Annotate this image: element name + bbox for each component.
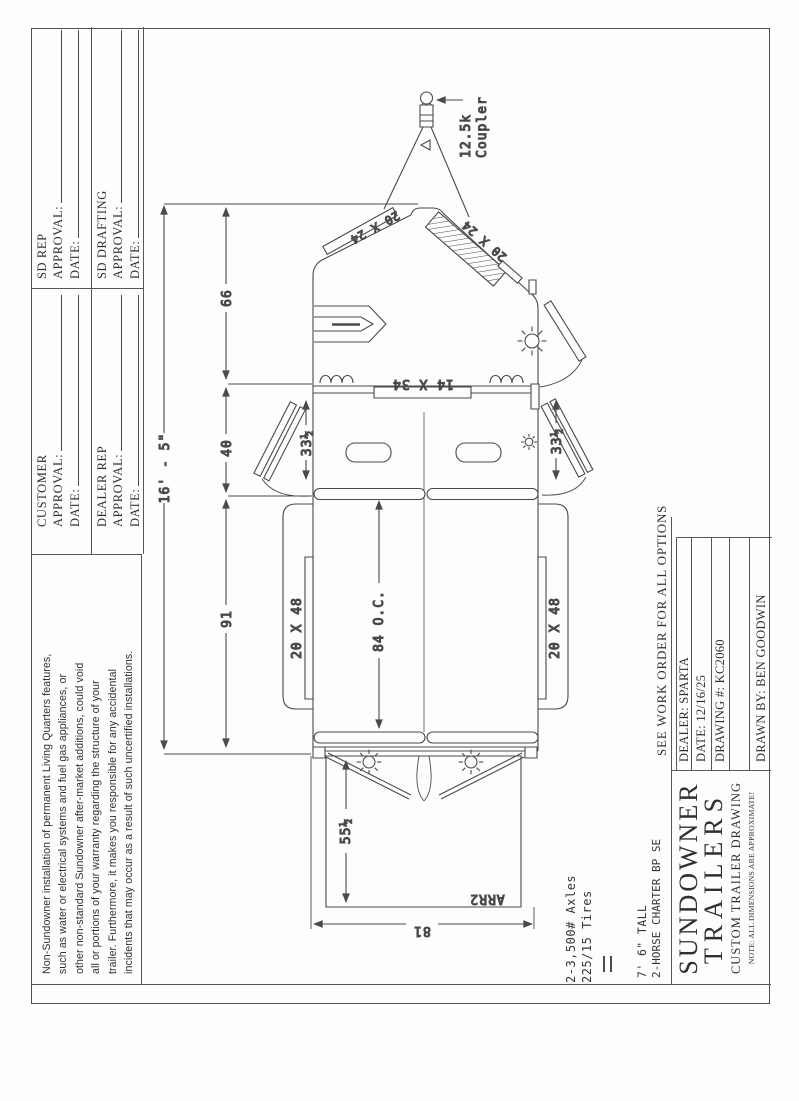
side-window-right [538,557,546,699]
nose-jack-fixture [314,306,386,342]
coupler [420,92,433,127]
dress-length-label: 40 [220,439,235,457]
dome-light-icon [459,750,484,775]
roof-vent [346,443,391,462]
bulkhead-latch-post [531,384,539,409]
overall-length-label: 16' - 5" [158,433,173,504]
tie-hooks [490,376,523,384]
stall-divider-rear [314,732,538,743]
stall-length-label: 91 [220,610,235,628]
dome-light-icon [357,750,382,775]
dim-rear-width: 81 [311,756,534,938]
dome-light-icon [521,434,537,450]
side-window-label: 20 X 48 [290,597,305,659]
scanned-trailer-drawing-page: Non-Sundowner installation of permanent … [0,0,799,1101]
dim-stall-spacing: 84 O.C. [372,501,387,728]
rear-doors-open [326,753,524,801]
stall-spacing-label: 84 O.C. [372,590,387,652]
drawing-sheet: Non-Sundowner installation of permanent … [31,28,770,1004]
stall-divider-front [314,489,538,500]
side-window-label: 20 X 48 [548,597,563,659]
door-hinge-tab [529,280,536,294]
nose-length-label: 66 [220,289,235,307]
dim-ramp-length: 55½ [339,761,354,902]
a-frame [384,127,469,217]
ramp-code-label: ARR2 [469,891,504,906]
escape-door-open [540,301,586,387]
trailer-plan-drawing: 12.5k Coupler 16' - 5" 66 40 91 [32,27,771,1003]
side-window-left [305,557,313,699]
drop-window-label: 33½ [300,430,315,456]
rear-corner-post [525,747,537,758]
ramp-length-label: 55½ [339,818,354,844]
coupler-rating-label: 12.5k [459,114,474,158]
dome-light-icon [518,327,547,356]
coupler-label: Coupler [475,96,490,158]
drop-window-label: 33½ [550,428,565,454]
trailer-body-outline [313,208,538,758]
bulkhead-window-label: 14 X 34 [392,376,454,391]
rear-corner-post [313,747,325,758]
roof-vent [456,443,501,462]
rear-width-label: 81 [413,923,431,938]
drop-window-right-open [541,399,593,495]
rear-ramp-open [326,756,521,907]
safety-chain-mark [421,140,430,150]
tie-hooks [320,376,353,384]
